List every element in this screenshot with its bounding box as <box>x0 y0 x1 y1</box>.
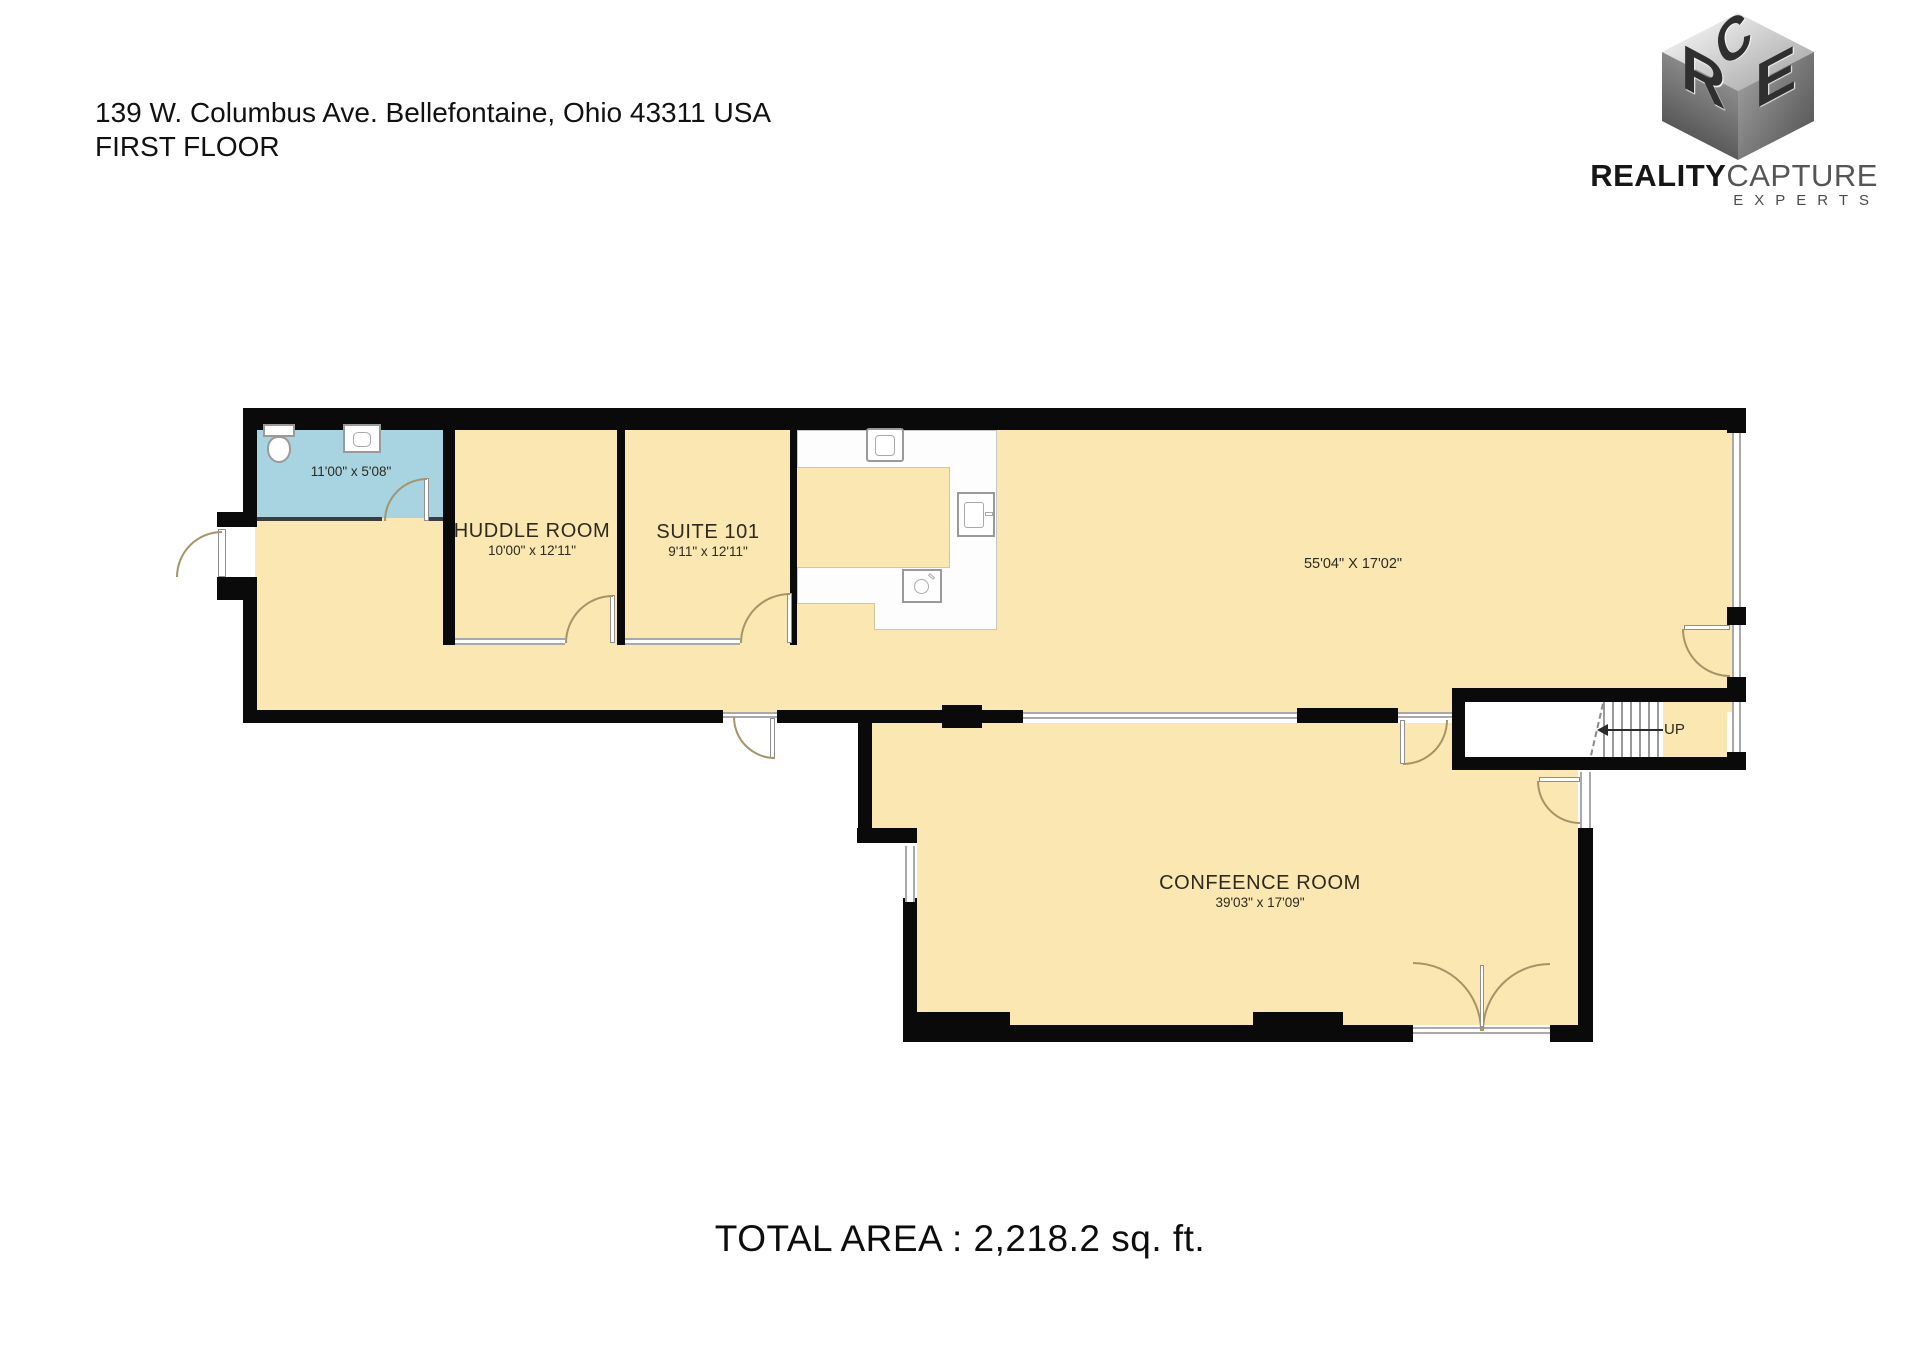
conference-bottom-wall <box>1010 1025 1413 1042</box>
stair-enclosure-bottom <box>1452 757 1746 770</box>
conference-right-door-sill <box>1580 772 1591 828</box>
brand-name: REALITYCAPTURE <box>1590 158 1878 194</box>
huddle-suite-divider <box>617 408 625 645</box>
stair-enclosure-top <box>1452 688 1746 702</box>
double-door-center-leaves <box>1480 965 1484 1027</box>
entry-alcove-bottom <box>217 577 257 600</box>
floor-plan-page: 139 W. Columbus Ave. Bellefontaine, Ohio… <box>0 0 1920 1358</box>
kitchenette-floor-notch <box>795 467 950 568</box>
huddle-room-label: HUDDLE ROOM 10'00" x 12'11" <box>454 520 611 558</box>
right-window-upper <box>1732 433 1741 607</box>
conference-sw-corner <box>903 1012 1010 1042</box>
bathroom-partition-east <box>428 517 443 521</box>
conference-top-door-sill <box>1398 712 1452 718</box>
right-door-sill <box>1732 625 1741 677</box>
huddle-room-dims: 10'00" x 12'11" <box>454 543 611 558</box>
corner-block-ne <box>1727 408 1746 433</box>
rooms-partition-east <box>625 638 740 645</box>
toilet-bowl-icon <box>267 436 291 463</box>
bathroom-partition-west <box>257 517 382 521</box>
stairs-up-label: UP <box>1664 721 1685 738</box>
entry-alcove-top <box>217 512 257 527</box>
south-exterior-door-arc <box>733 717 775 759</box>
company-logo: C R E REALITYCAPTURE EXPERTS <box>1588 10 1880 210</box>
conference-right-wall <box>1578 828 1593 1042</box>
suite-101-label: SUITE 101 9'11" x 12'11" <box>656 521 759 559</box>
junction-glass-wall <box>1023 712 1297 719</box>
exterior-wall-top <box>243 408 1746 430</box>
stair-direction-arrow <box>1597 724 1608 736</box>
wing-bottom-wall-mid <box>777 710 1023 723</box>
conference-room-dims: 39'03" x 17'09" <box>1159 895 1361 910</box>
stair-enclosure-left <box>1452 688 1465 770</box>
entry-door-arc <box>176 531 222 577</box>
brand-bold: REALITY <box>1590 158 1726 193</box>
bathroom-label: 11'00" x 5'08" <box>311 464 392 479</box>
conference-left-jog <box>857 828 917 843</box>
stair-direction-line <box>1608 729 1663 731</box>
conference-room-name: CONFEENCE ROOM <box>1159 872 1361 895</box>
right-window-lower <box>1732 702 1741 752</box>
exterior-wall-left-upper <box>243 408 257 512</box>
rooms-partition-west <box>455 638 565 645</box>
header: 139 W. Columbus Ave. Bellefontaine, Ohio… <box>95 96 771 164</box>
kitchen-sink-icon <box>957 492 995 537</box>
huddle-room-name: HUDDLE ROOM <box>454 520 611 543</box>
conference-right-top-block <box>1578 757 1593 770</box>
suite-101-dims: 9'11" x 12'11" <box>656 544 759 559</box>
conference-top-wall <box>1297 708 1398 723</box>
conference-left-wall-lower <box>903 898 917 1012</box>
exterior-wall-left-lower <box>243 598 257 723</box>
stove-icon <box>902 569 942 603</box>
brand-subtitle: EXPERTS <box>1733 192 1880 209</box>
address-line: 139 W. Columbus Ave. Bellefontaine, Ohio… <box>95 96 771 130</box>
bathroom-sink-icon <box>343 424 381 453</box>
brand-light: CAPTURE <box>1726 158 1878 193</box>
kitchenette-floor-notch2 <box>795 603 875 630</box>
main-room-dims: 55'04" X 17'02" <box>1304 556 1402 572</box>
logo-cube-icon: C R E <box>1643 10 1833 160</box>
conference-left-door-sill <box>905 846 915 902</box>
fridge-icon <box>866 428 904 462</box>
wing-bottom-wall-pier <box>942 705 982 728</box>
conference-floor-lower <box>917 843 1578 1025</box>
total-area-text: TOTAL AREA : 2,218.2 sq. ft. <box>0 1218 1920 1260</box>
conference-room-label: CONFEENCE ROOM 39'03" x 17'09" <box>1159 872 1361 910</box>
floor-title: FIRST FLOOR <box>95 130 771 164</box>
main-room-label: 55'04" X 17'02" <box>1304 556 1402 572</box>
bathroom-dims: 11'00" x 5'08" <box>311 464 392 479</box>
wing-bottom-wall-west <box>243 710 723 723</box>
conference-left-wall-upper <box>858 723 872 832</box>
right-wall-block-2 <box>1727 607 1746 625</box>
suite-101-name: SUITE 101 <box>656 521 759 544</box>
conference-bottom-pilaster <box>1253 1012 1343 1025</box>
